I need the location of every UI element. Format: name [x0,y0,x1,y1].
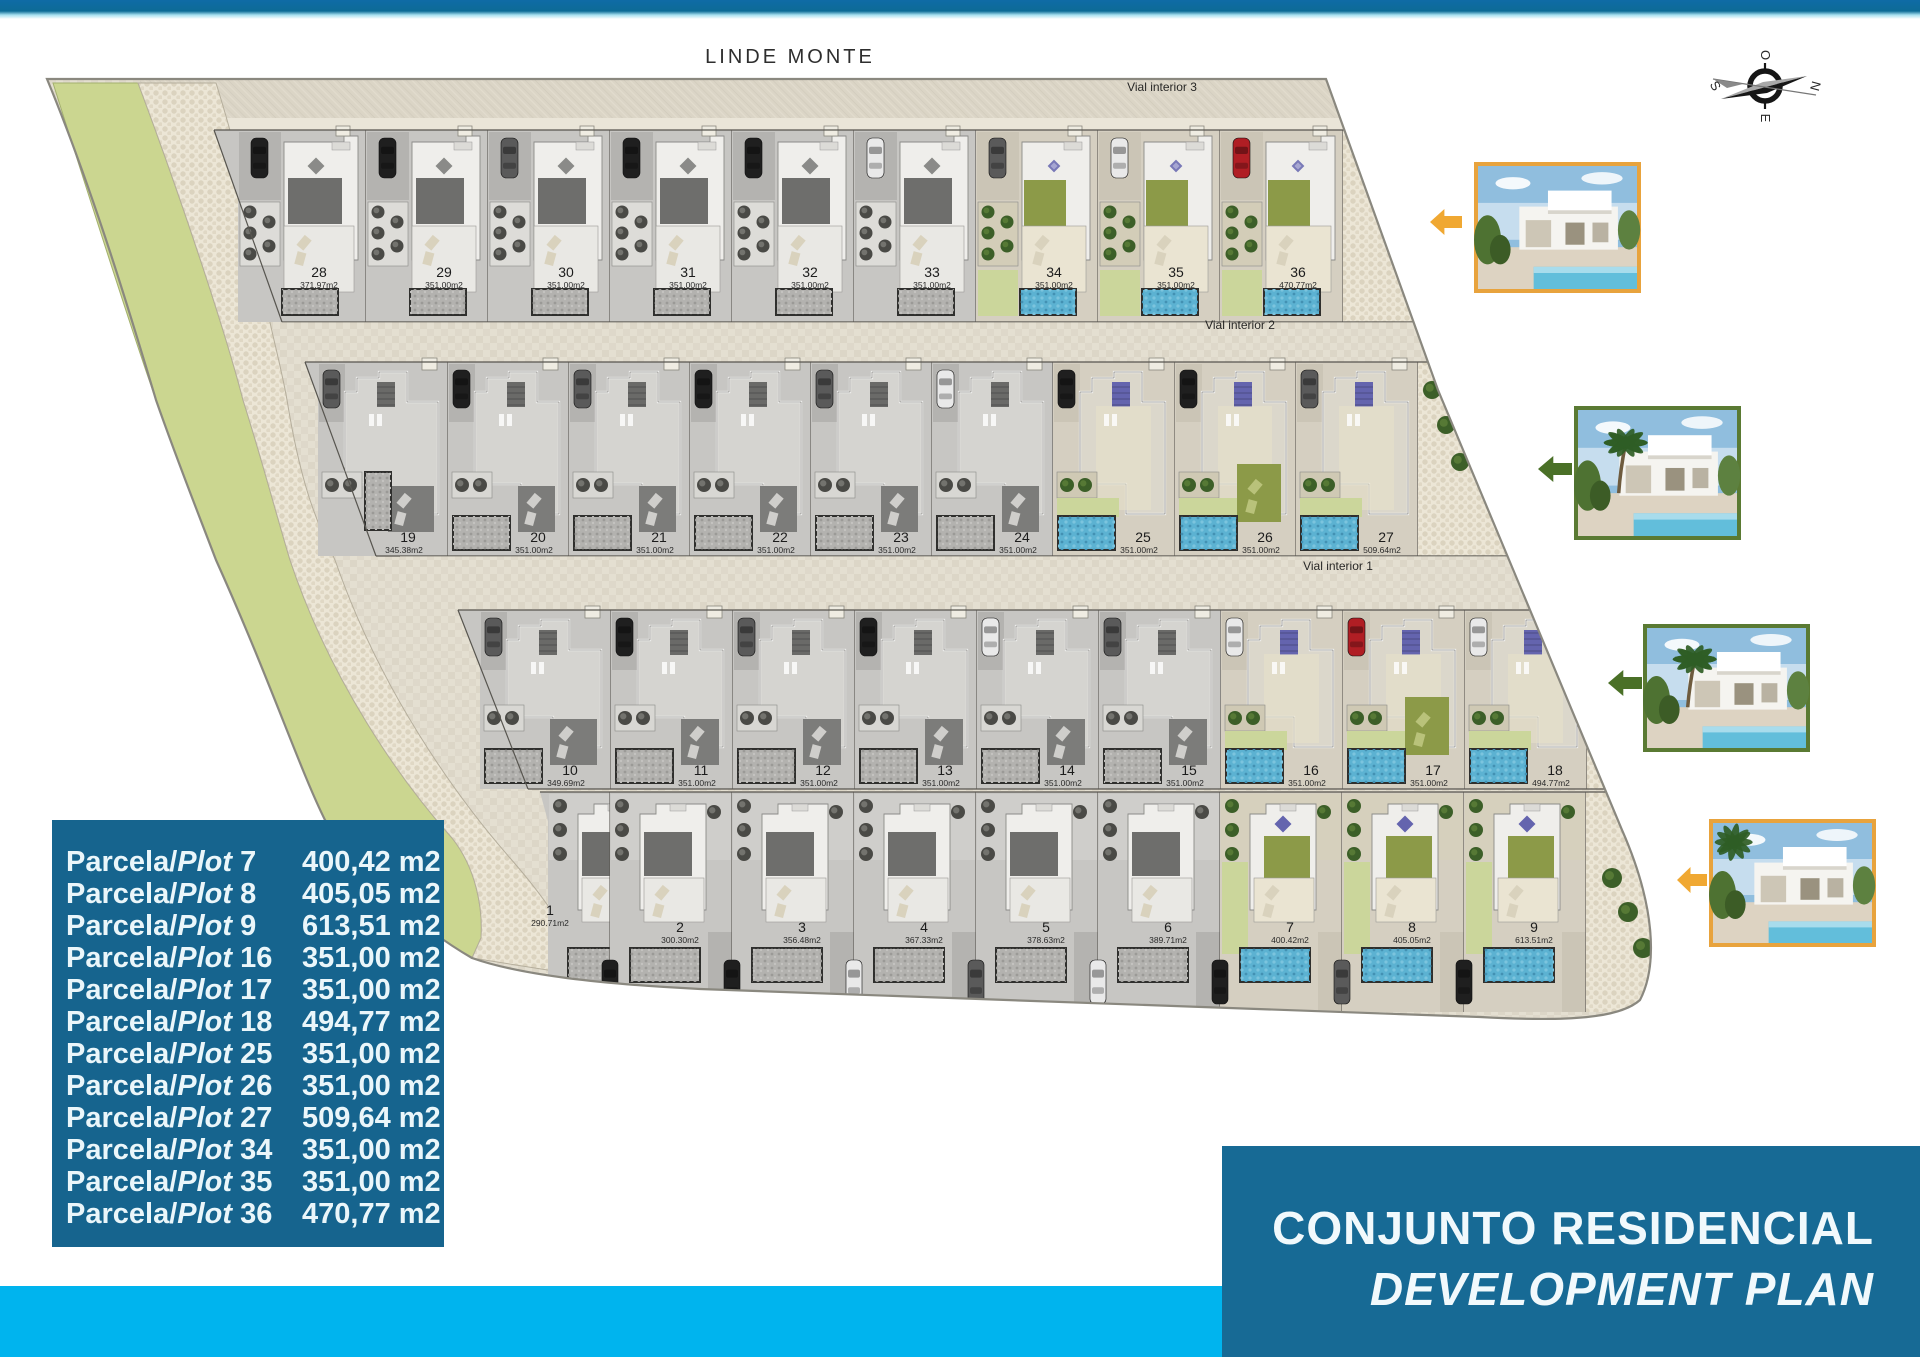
svg-text:25: 25 [1135,529,1151,545]
svg-text:351.00m2: 351.00m2 [1410,778,1448,788]
svg-text:494.77m2: 494.77m2 [1532,778,1570,788]
svg-text:13: 13 [937,762,953,778]
svg-text:389.71m2: 389.71m2 [1149,935,1187,945]
svg-text:351.00m2: 351.00m2 [999,545,1037,555]
svg-text:367.33m2: 367.33m2 [905,935,943,945]
svg-text:20: 20 [530,529,546,545]
svg-text:14: 14 [1059,762,1075,778]
svg-text:400.42m2: 400.42m2 [1271,935,1309,945]
svg-text:21: 21 [651,529,667,545]
svg-text:405.05m2: 405.05m2 [1393,935,1431,945]
svg-text:N: N [1807,80,1824,93]
svg-text:351.00m2: 351.00m2 [1166,778,1204,788]
svg-text:27: 27 [1378,529,1394,545]
svg-text:6: 6 [1164,919,1172,935]
svg-text:351.00m2: 351.00m2 [922,778,960,788]
svg-text:36: 36 [1290,264,1306,280]
svg-text:O: O [1758,50,1773,60]
svg-text:351.00m2: 351.00m2 [757,545,795,555]
svg-text:32: 32 [802,264,818,280]
svg-text:16: 16 [1303,762,1319,778]
svg-text:7: 7 [1286,919,1294,935]
svg-text:356.48m2: 356.48m2 [783,935,821,945]
svg-text:300.30m2: 300.30m2 [661,935,699,945]
svg-text:34: 34 [1046,264,1062,280]
svg-text:9: 9 [1530,919,1538,935]
svg-text:Vial interior 3: Vial interior 3 [1127,80,1197,94]
svg-text:22: 22 [772,529,788,545]
svg-text:8: 8 [1408,919,1416,935]
svg-text:26: 26 [1257,529,1273,545]
svg-text:613.51m2: 613.51m2 [1515,935,1553,945]
svg-text:E: E [1758,114,1773,123]
svg-text:351.00m2: 351.00m2 [636,545,674,555]
svg-text:31: 31 [680,264,696,280]
svg-text:Vial interior 1: Vial interior 1 [1303,559,1373,573]
svg-text:509.64m2: 509.64m2 [1363,545,1401,555]
svg-text:5: 5 [1042,919,1050,935]
svg-text:10: 10 [562,762,578,778]
svg-text:19: 19 [400,529,416,545]
svg-text:30: 30 [558,264,574,280]
svg-text:17: 17 [1425,762,1441,778]
svg-text:351.00m2: 351.00m2 [678,778,716,788]
svg-text:351.00m2: 351.00m2 [1288,778,1326,788]
svg-text:345.38m2: 345.38m2 [385,545,423,555]
svg-text:24: 24 [1014,529,1030,545]
svg-text:3: 3 [798,919,806,935]
svg-text:11: 11 [694,762,709,778]
svg-text:12: 12 [815,762,831,778]
svg-text:351.00m2: 351.00m2 [800,778,838,788]
svg-text:28: 28 [311,264,327,280]
svg-text:351.00m2: 351.00m2 [878,545,916,555]
svg-text:33: 33 [924,264,940,280]
svg-text:4: 4 [920,919,928,935]
svg-text:S: S [1707,78,1724,93]
svg-text:29: 29 [436,264,452,280]
svg-text:35: 35 [1168,264,1184,280]
svg-text:18: 18 [1547,762,1563,778]
svg-text:378.63m2: 378.63m2 [1027,935,1065,945]
svg-text:351.00m2: 351.00m2 [1044,778,1082,788]
svg-text:2: 2 [676,919,684,935]
svg-text:Vial interior 2: Vial interior 2 [1205,318,1275,332]
svg-text:351.00m2: 351.00m2 [1242,545,1280,555]
svg-text:1: 1 [546,902,554,918]
svg-text:15: 15 [1181,762,1197,778]
svg-text:351.00m2: 351.00m2 [515,545,553,555]
svg-text:290.71m2: 290.71m2 [531,918,569,928]
svg-text:23: 23 [893,529,909,545]
svg-text:351.00m2: 351.00m2 [1120,545,1158,555]
svg-text:349.69m2: 349.69m2 [547,778,585,788]
